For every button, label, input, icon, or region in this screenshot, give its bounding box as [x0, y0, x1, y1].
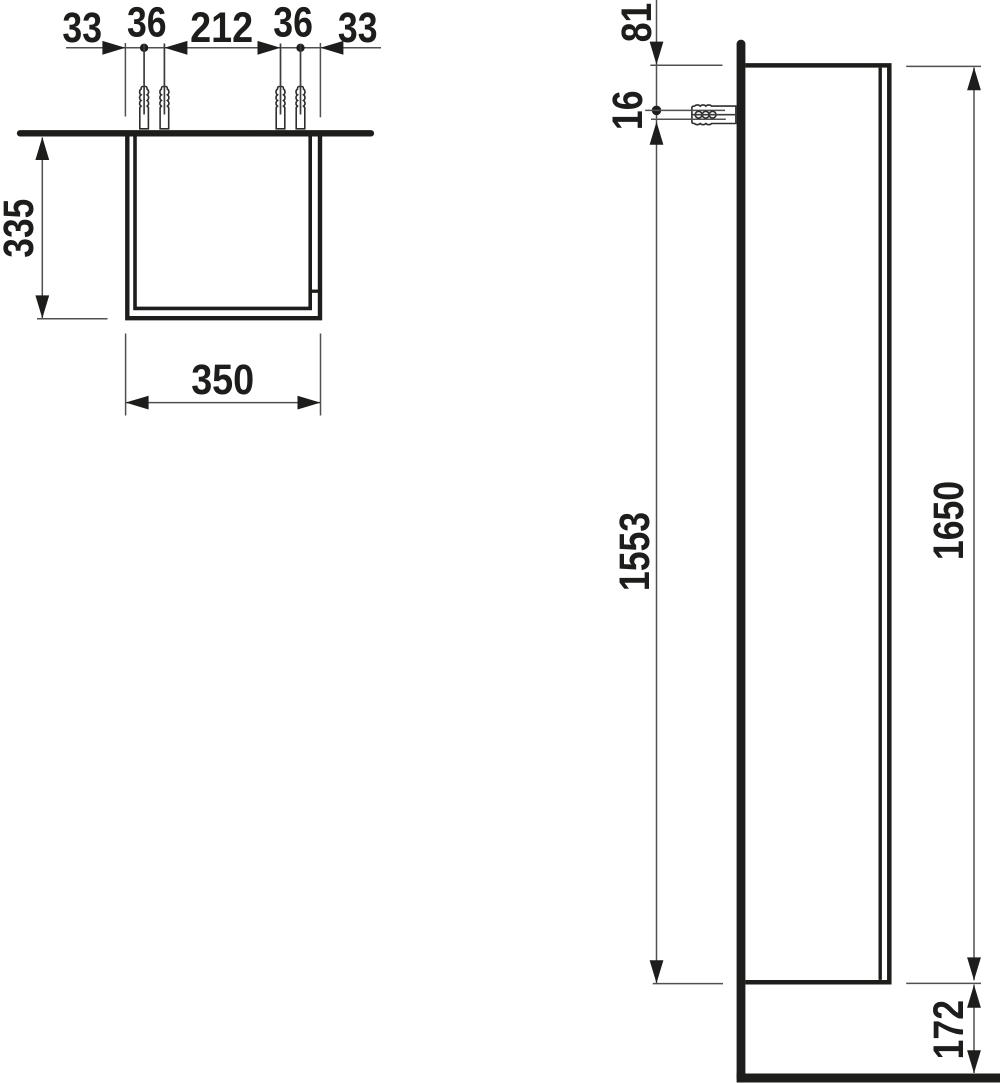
svg-text:16: 16	[605, 91, 652, 131]
svg-text:33: 33	[62, 5, 102, 52]
svg-text:212: 212	[190, 5, 253, 52]
svg-text:33: 33	[338, 5, 378, 52]
svg-text:350: 350	[191, 357, 254, 404]
svg-text:1553: 1553	[612, 512, 659, 591]
svg-text:81: 81	[614, 3, 661, 43]
svg-text:36: 36	[127, 0, 167, 47]
svg-text:36: 36	[273, 0, 313, 47]
svg-text:335: 335	[0, 199, 43, 258]
svg-text:1650: 1650	[926, 481, 973, 560]
svg-text:172: 172	[926, 1000, 973, 1059]
